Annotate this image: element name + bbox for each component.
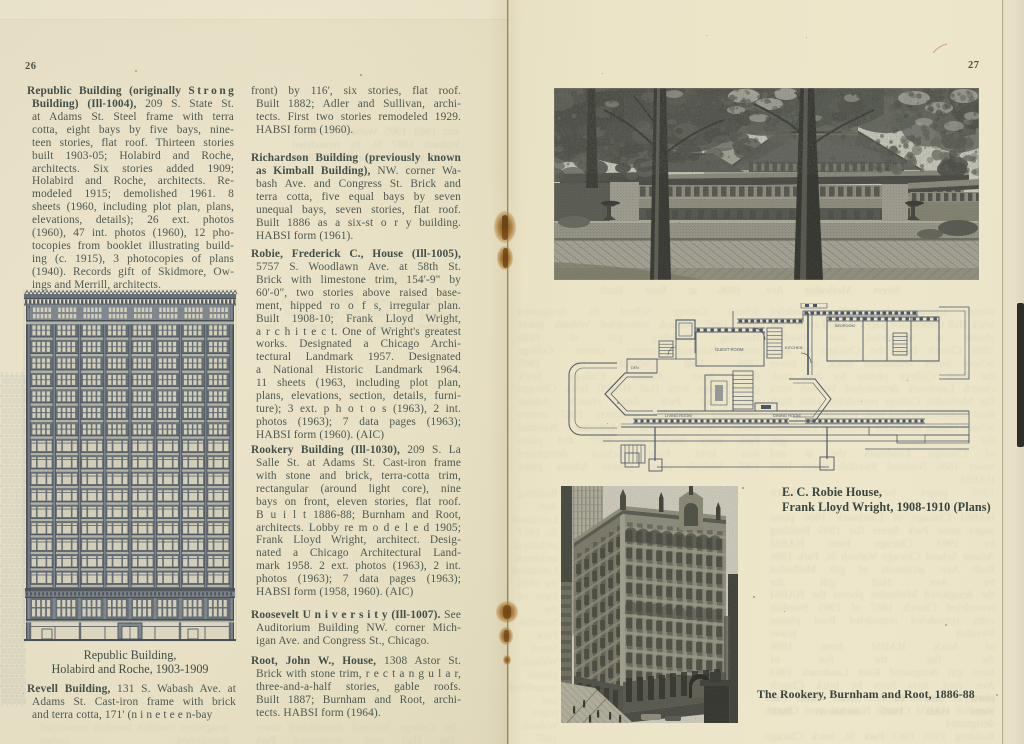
- svg-text:GUEST ROOM: GUEST ROOM: [715, 347, 744, 352]
- svg-text:DEN: DEN: [631, 366, 639, 370]
- svg-text:BEDROOM: BEDROOM: [835, 324, 855, 328]
- svg-text:KITCHEN: KITCHEN: [785, 345, 803, 350]
